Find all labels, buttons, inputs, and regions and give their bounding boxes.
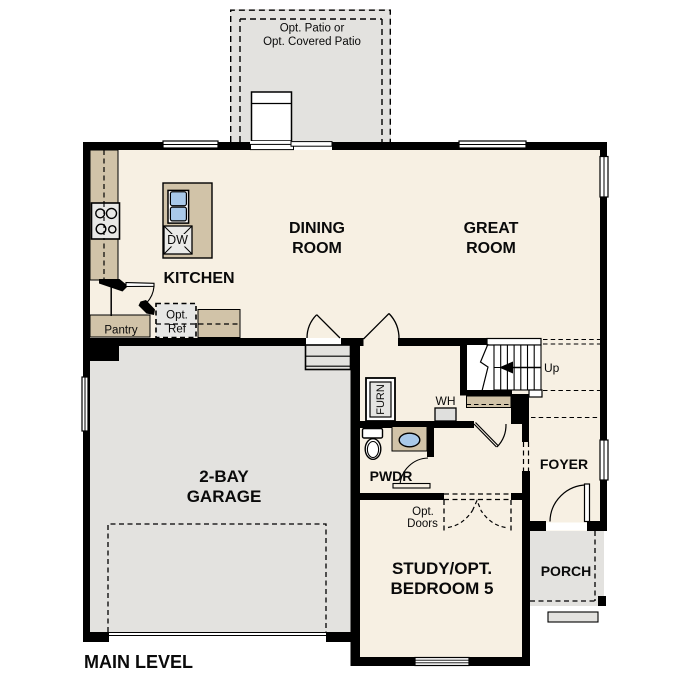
svg-text:BEDROOM 5: BEDROOM 5 [391,579,494,598]
svg-text:ROOM: ROOM [292,240,342,257]
svg-text:MAIN LEVEL: MAIN LEVEL [84,652,193,672]
svg-text:PORCH: PORCH [541,563,592,579]
svg-text:WH: WH [436,394,456,408]
svg-text:ROOM: ROOM [466,240,516,257]
svg-text:GARAGE: GARAGE [187,487,262,506]
svg-text:FURN: FURN [375,384,387,415]
svg-text:GREAT: GREAT [464,220,519,237]
svg-text:STUDY/OPT.: STUDY/OPT. [392,559,492,578]
svg-text:KITCHEN: KITCHEN [163,270,234,287]
svg-text:Up: Up [544,361,560,375]
svg-text:Opt. Covered Patio: Opt. Covered Patio [263,36,361,48]
svg-text:Opt. Patio or: Opt. Patio or [280,23,345,35]
svg-text:Pantry: Pantry [104,325,137,337]
svg-text:DW: DW [167,233,188,247]
svg-text:Doors: Doors [407,518,438,530]
svg-text:PWDR: PWDR [370,468,413,484]
svg-text:Ref: Ref [168,324,187,336]
svg-text:FOYER: FOYER [540,456,588,472]
svg-text:2-BAY: 2-BAY [199,467,249,486]
svg-text:Opt.: Opt. [166,310,188,322]
svg-text:Opt.: Opt. [412,506,434,518]
svg-text:DINING: DINING [289,220,345,237]
